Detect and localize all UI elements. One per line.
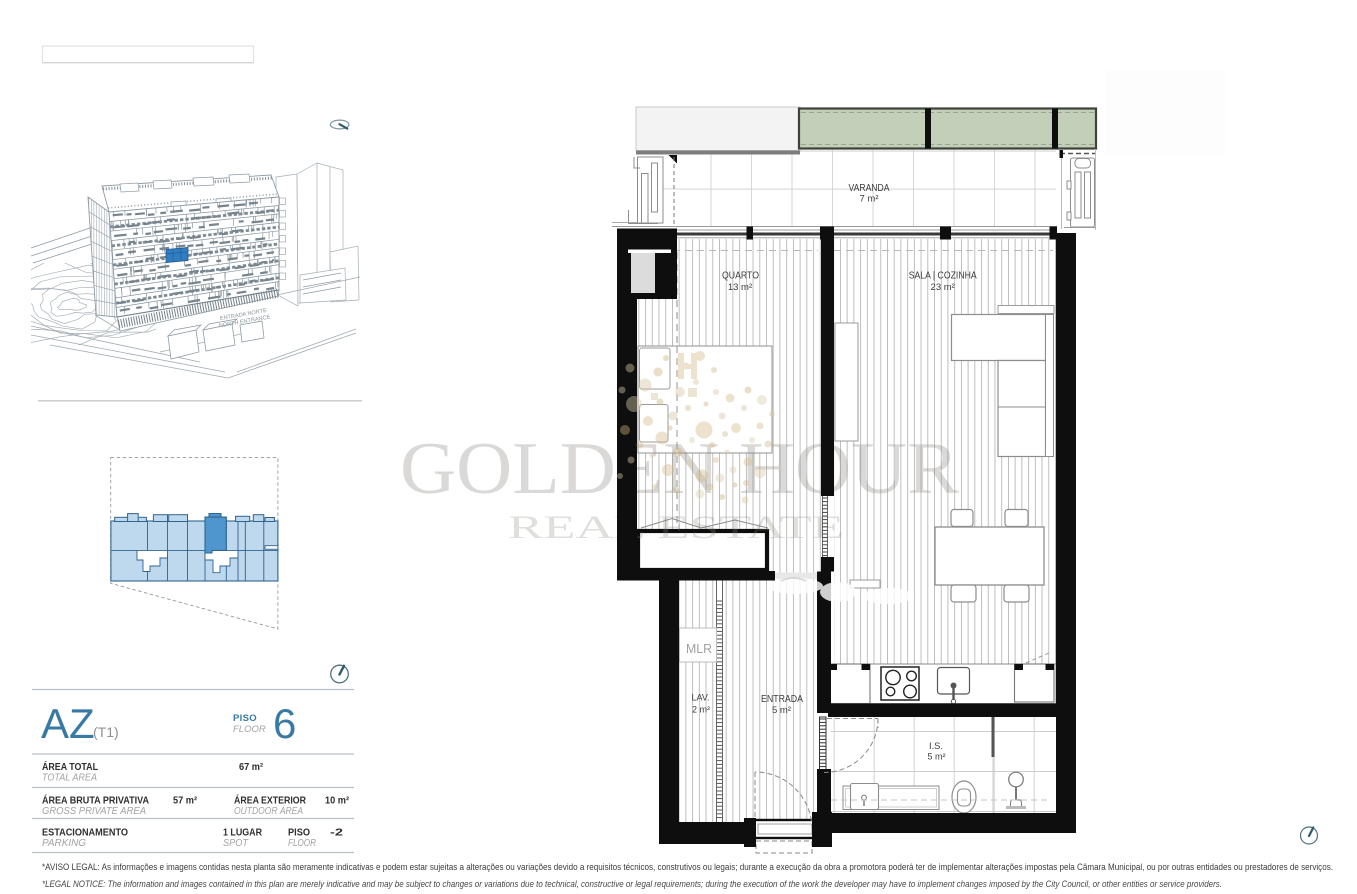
svg-text:VARANDA: VARANDA xyxy=(849,183,890,194)
svg-text:ESTACIONAMENTO: ESTACIONAMENTO xyxy=(42,828,128,839)
svg-text:6: 6 xyxy=(273,700,296,747)
svg-text:23 m²: 23 m² xyxy=(931,282,955,293)
svg-text:ENTRADA: ENTRADA xyxy=(761,694,803,705)
svg-text:PISO: PISO xyxy=(233,713,257,724)
svg-text:GROSS PRIVATE AREA: GROSS PRIVATE AREA xyxy=(42,806,146,817)
svg-text:57 m²: 57 m² xyxy=(173,796,198,807)
svg-text:5 m²: 5 m² xyxy=(772,705,791,716)
svg-text:2 m²: 2 m² xyxy=(692,705,710,715)
svg-text:13 m²: 13 m² xyxy=(728,282,752,293)
svg-text:*LEGAL NOTICE: The information: *LEGAL NOTICE: The information and image… xyxy=(42,879,1222,889)
svg-text:PISO: PISO xyxy=(288,828,310,839)
svg-text:AZ: AZ xyxy=(41,700,95,747)
svg-text:10 m²: 10 m² xyxy=(325,796,350,807)
svg-text:TOTAL AREA: TOTAL AREA xyxy=(42,773,97,784)
svg-text:5 m²: 5 m² xyxy=(928,752,946,762)
svg-text:ÁREA TOTAL: ÁREA TOTAL xyxy=(42,760,98,773)
svg-text:PARKING: PARKING xyxy=(42,838,86,849)
svg-text:1 LUGAR: 1 LUGAR xyxy=(223,828,263,839)
svg-text:ÁREA BRUTA PRIVATIVA: ÁREA BRUTA PRIVATIVA xyxy=(42,794,149,807)
svg-text:FLOOR: FLOOR xyxy=(288,838,316,849)
svg-text:*AVISO LEGAL: As informações e: *AVISO LEGAL: As informações e imagens c… xyxy=(42,862,1333,872)
svg-text:(T1): (T1) xyxy=(93,724,119,740)
svg-text:MLR: MLR xyxy=(686,642,712,656)
svg-text:REAL ESTATE: REAL ESTATE xyxy=(508,510,844,546)
svg-text:-2: -2 xyxy=(330,828,344,839)
svg-text:GOLDEN HOUR: GOLDEN HOUR xyxy=(400,428,960,510)
svg-text:QUARTO: QUARTO xyxy=(722,271,759,282)
svg-text:SPOT: SPOT xyxy=(223,838,249,849)
svg-text:67 m²: 67 m² xyxy=(239,762,264,773)
svg-text:SALA | COZINHA: SALA | COZINHA xyxy=(909,271,977,282)
svg-text:ÁREA EXTERIOR: ÁREA EXTERIOR xyxy=(234,794,307,807)
svg-text:OUTDOOR ÁREA: OUTDOOR ÁREA xyxy=(234,804,303,817)
svg-text:FLOOR: FLOOR xyxy=(233,724,266,735)
svg-text:LAV.: LAV. xyxy=(692,693,710,704)
svg-text:I.S.: I.S. xyxy=(929,741,943,752)
svg-text:7 m²: 7 m² xyxy=(860,194,879,205)
